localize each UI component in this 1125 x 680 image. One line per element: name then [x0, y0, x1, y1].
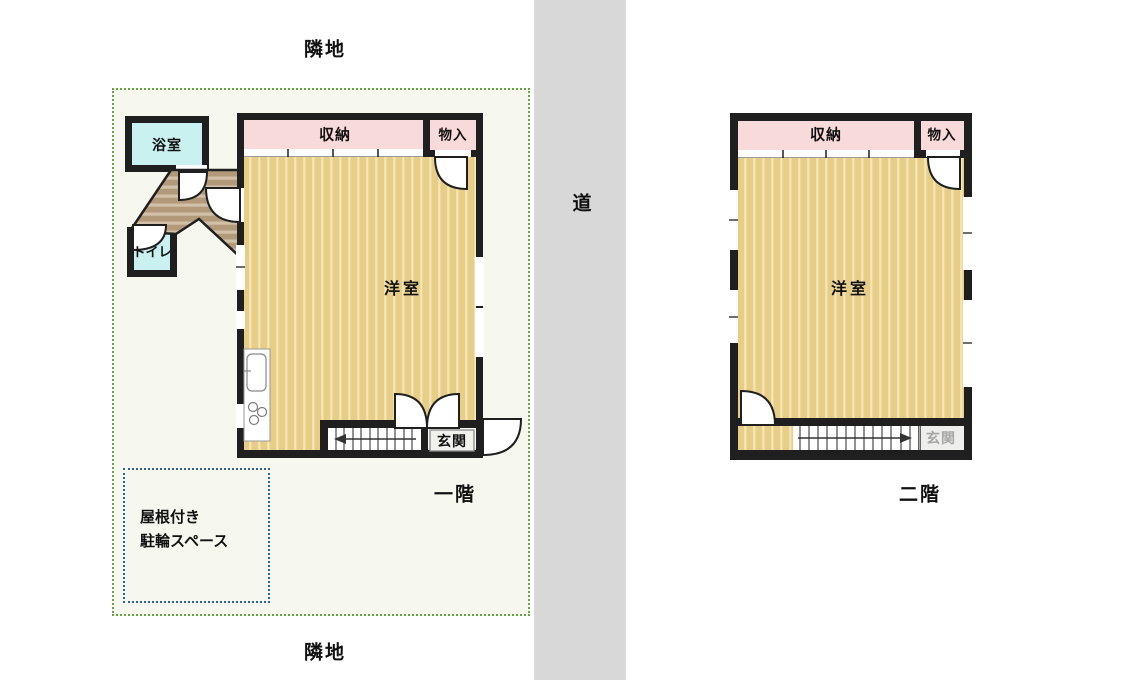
front-door-arc	[483, 419, 521, 455]
western-room-label-2f: 洋室	[831, 282, 869, 298]
adjacent-land-label-bottom: 隣地	[304, 644, 346, 663]
toilet-label: トイレ	[132, 246, 171, 259]
western-room-label-1f: 洋室	[384, 282, 422, 298]
bath-label: 浴室	[152, 138, 182, 152]
adjacent-land-label-top: 隣地	[304, 41, 346, 60]
kitchen-counter	[244, 349, 270, 441]
entrance-label-1f: 玄関	[437, 434, 467, 448]
floorplan-graphics	[0, 0, 1125, 680]
first-floor-plan	[125, 113, 521, 458]
closet-label-1f: 物入	[439, 128, 468, 142]
closet-label-2f: 物入	[928, 128, 957, 142]
bike-space-label-line2: 駐輪スペース	[140, 530, 228, 551]
road-label: 道	[572, 195, 593, 214]
first-floor-caption: 一階	[434, 486, 476, 505]
entrance-label-2f: 玄関	[926, 431, 956, 445]
bike-space-label-line1: 屋根付き	[140, 506, 200, 527]
kitchen-sink	[247, 354, 266, 391]
storage-label-1f: 収納	[319, 128, 351, 143]
storage-label-2f: 収納	[810, 128, 842, 143]
second-floor-caption: 二階	[899, 486, 941, 505]
